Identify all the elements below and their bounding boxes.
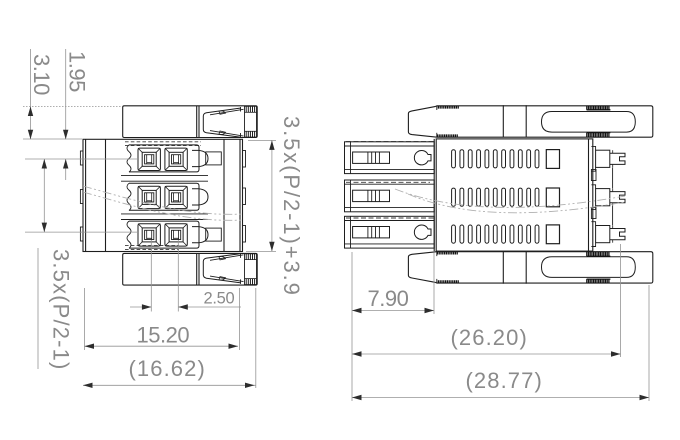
svg-text:7.90: 7.90 bbox=[368, 286, 409, 311]
svg-text:(26.20): (26.20) bbox=[451, 325, 528, 350]
svg-text:2.50: 2.50 bbox=[204, 290, 235, 308]
svg-text:15.20: 15.20 bbox=[137, 323, 190, 348]
svg-text:3.5x(P/2-1)+3.9: 3.5x(P/2-1)+3.9 bbox=[279, 116, 304, 297]
svg-text:3.10: 3.10 bbox=[29, 54, 54, 95]
svg-text:3.5x(P/2-1): 3.5x(P/2-1) bbox=[49, 249, 74, 370]
svg-text:1.95: 1.95 bbox=[65, 51, 90, 92]
svg-text:(28.77): (28.77) bbox=[466, 368, 543, 393]
svg-text:(16.62): (16.62) bbox=[129, 356, 206, 381]
